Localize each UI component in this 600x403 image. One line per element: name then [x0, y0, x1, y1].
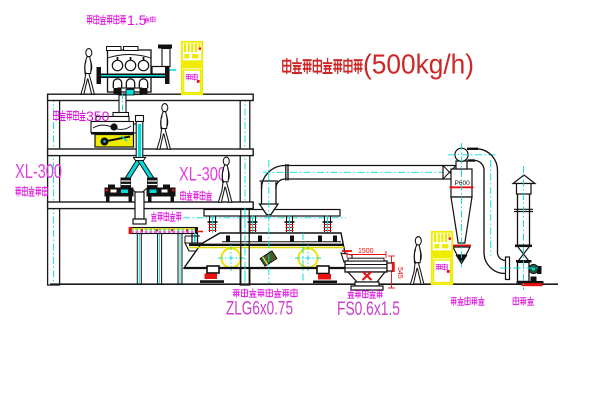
svg-text:ZLG6x0.75: ZLG6x0.75 [226, 299, 293, 320]
svg-text:XL-300: XL-300 [15, 161, 62, 183]
svg-text:545: 545 [396, 267, 403, 279]
svg-text:(500kg/h): (500kg/h) [363, 49, 474, 80]
svg-text:XL-300: XL-300 [179, 164, 226, 186]
svg-text:350: 350 [86, 108, 110, 124]
svg-text:FS0.6x1.5: FS0.6x1.5 [337, 299, 400, 320]
svg-text:P600: P600 [455, 180, 471, 187]
svg-text:1500: 1500 [358, 248, 374, 255]
svg-text:1.5: 1.5 [127, 12, 147, 28]
